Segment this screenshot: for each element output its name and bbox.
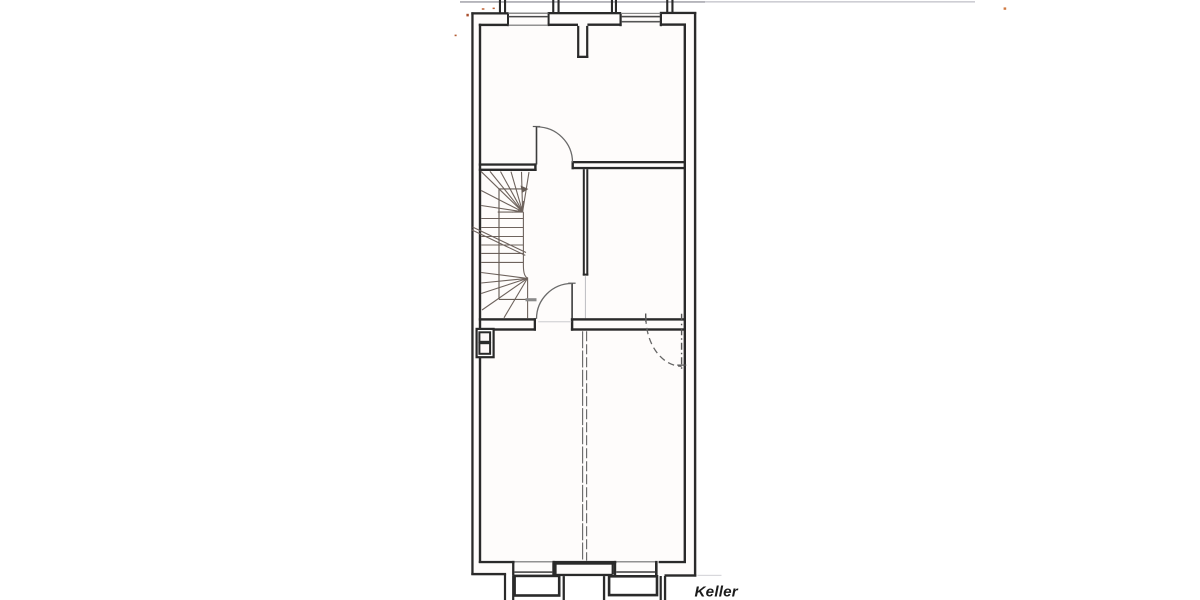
svg-text:Keller: Keller: [695, 584, 739, 600]
